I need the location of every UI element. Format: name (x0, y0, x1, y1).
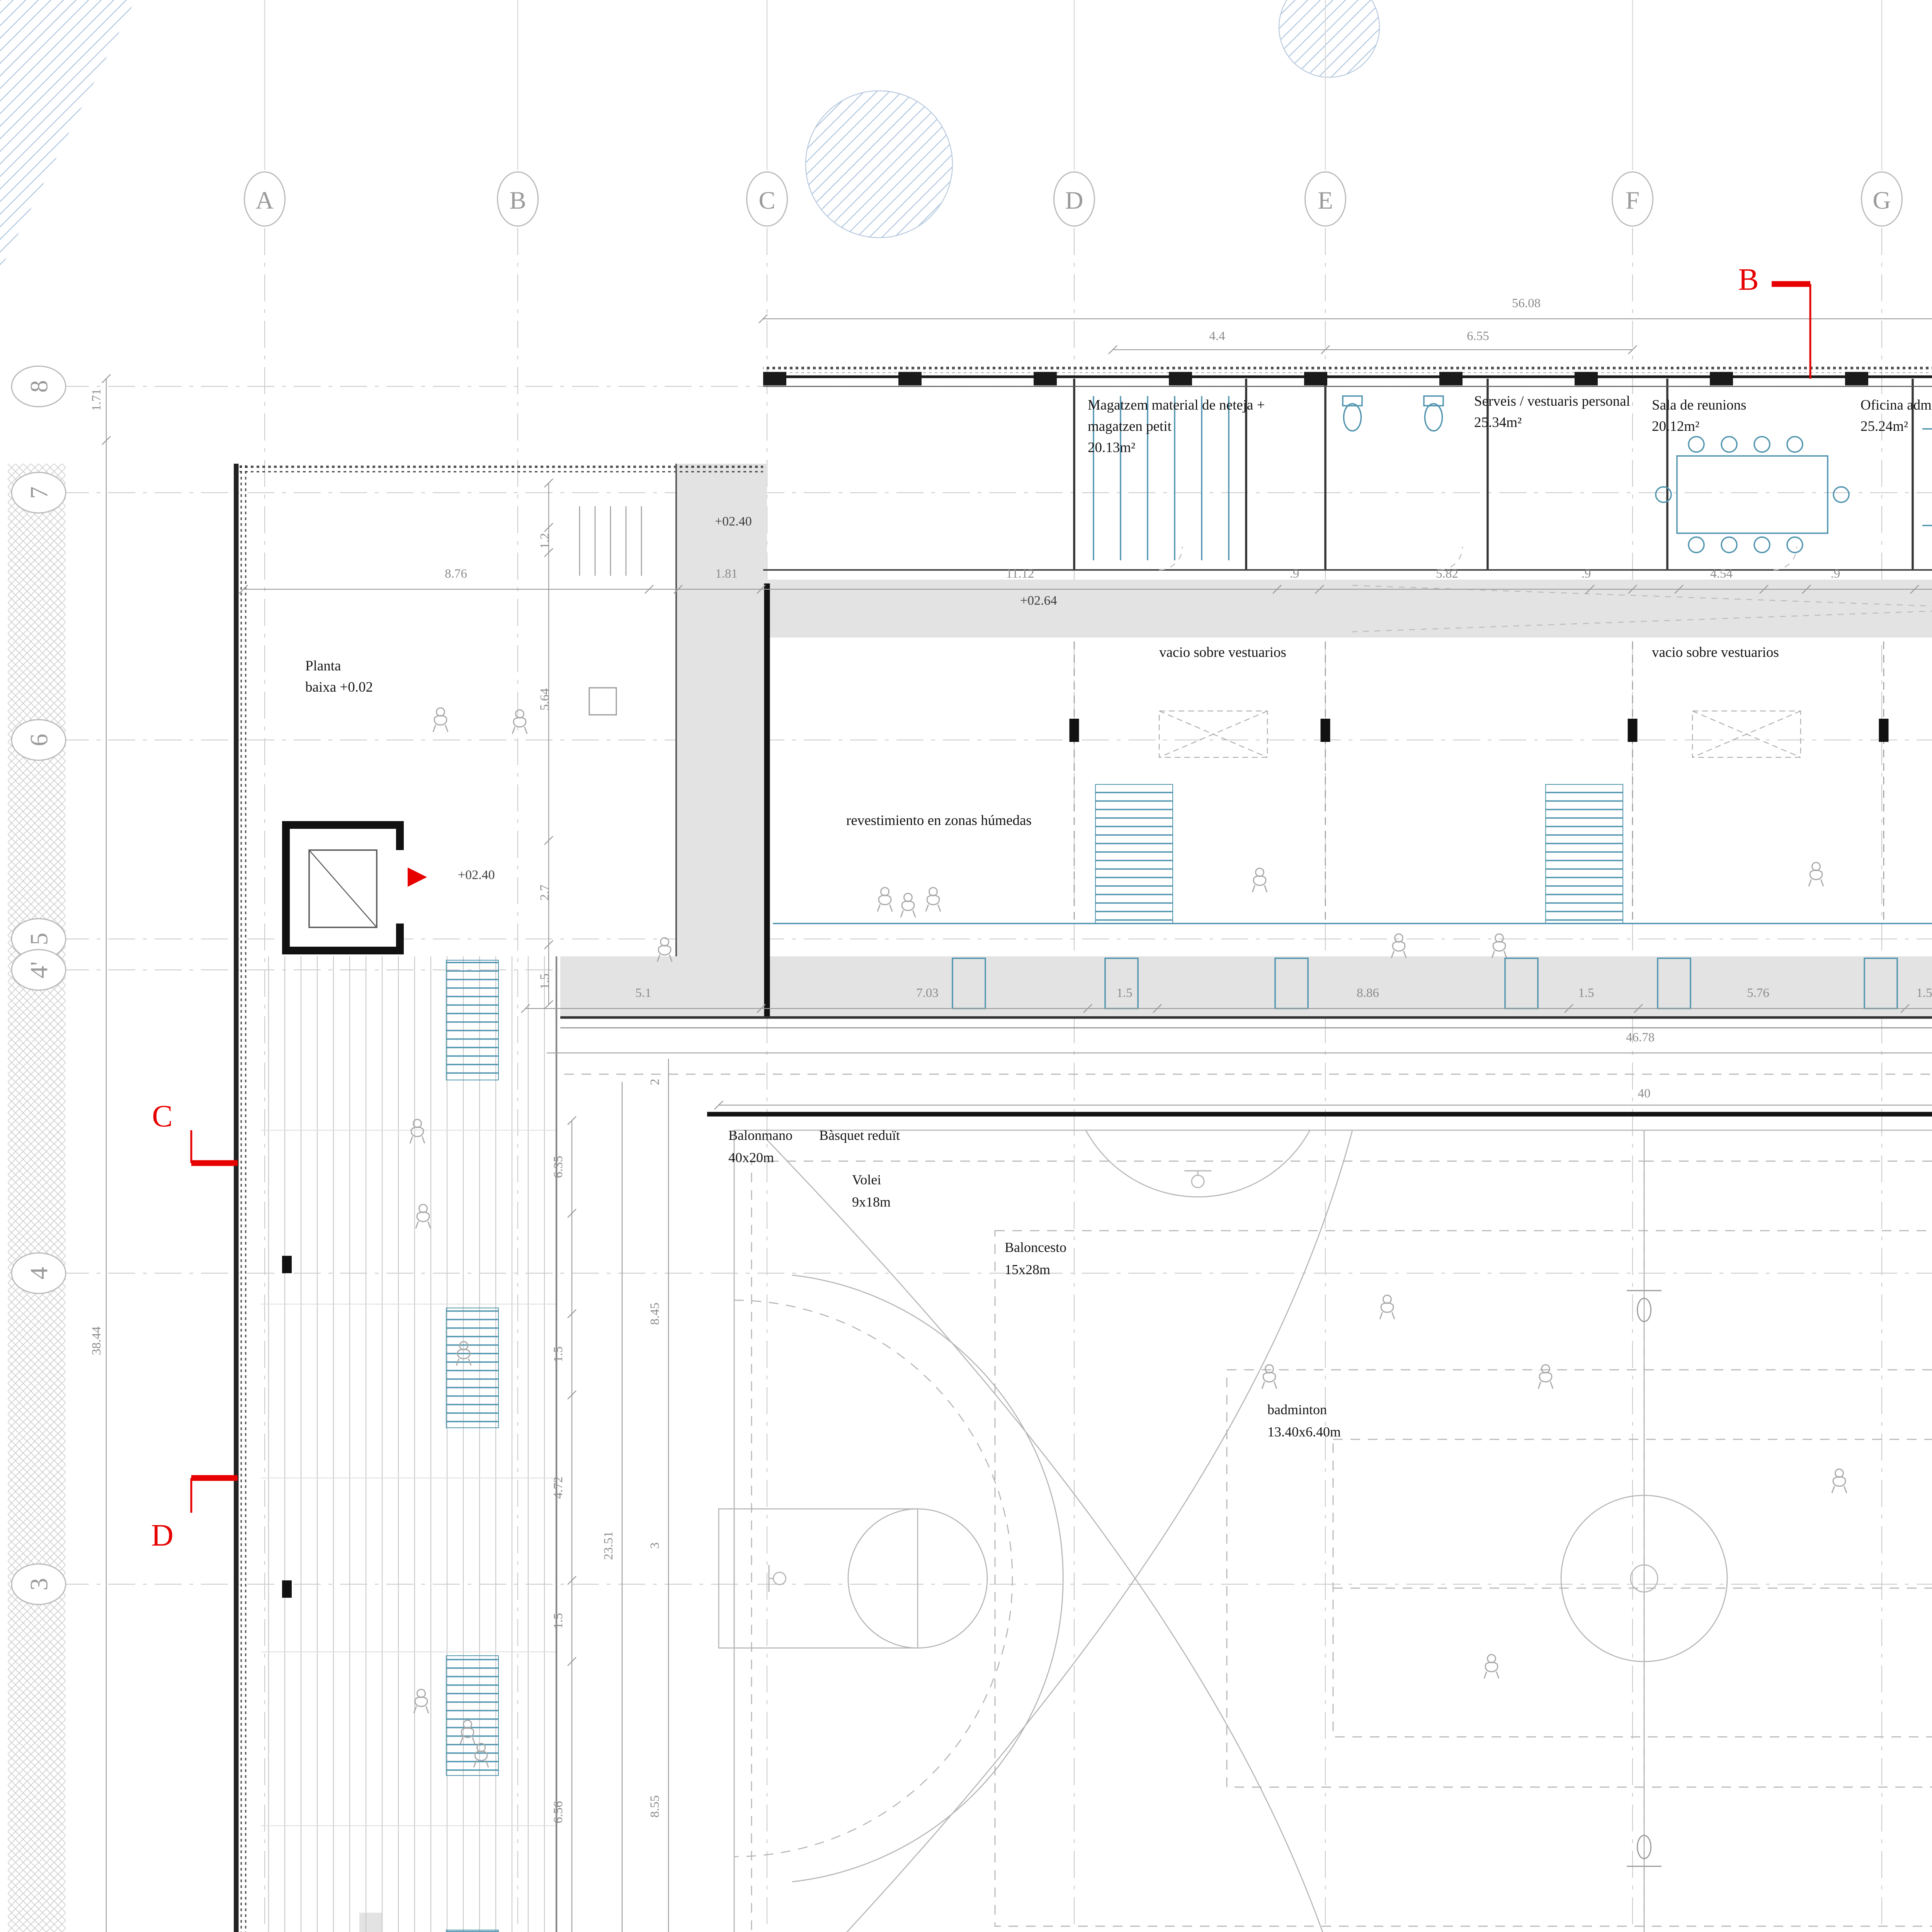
dimension-label: 56.08 (1512, 296, 1541, 310)
dimension-label: 1.81 (715, 567, 738, 581)
dimension-label: 1.5 (551, 1346, 565, 1362)
person-figure (433, 708, 448, 732)
room-label: baixa +0.02 (305, 679, 373, 695)
dimension-label: 8.76 (445, 567, 467, 581)
dimension-label: .9 (1582, 567, 1591, 581)
court-label: Baloncesto (1005, 1240, 1066, 1255)
three-point-arc (792, 1275, 1063, 1882)
dimension-label: 40 (1638, 1087, 1651, 1100)
section-label: B (1738, 263, 1759, 297)
room-label: Magatzem material de neteja + (1088, 397, 1265, 413)
person-figure (1380, 1295, 1395, 1319)
corridor-zone (763, 580, 1932, 638)
person-figure (416, 1204, 430, 1228)
person-figure (901, 893, 915, 917)
elevator (286, 825, 427, 951)
dimension-label: 5.1 (635, 986, 651, 1000)
dimension-label: 1.5 (1916, 986, 1932, 1000)
grid-column-label: F (1626, 187, 1639, 214)
person-figure (512, 710, 527, 734)
dimension-label: 1.5 (538, 973, 552, 989)
person-figure (1538, 1365, 1553, 1389)
room-label: 20.13m² (1088, 440, 1135, 456)
room-label: 25.34m² (1474, 415, 1522, 430)
goal (719, 1509, 734, 1648)
dimension-label: 1.71 (90, 389, 104, 411)
dimension-label: 1.5 (1578, 986, 1594, 1000)
dimension-label: .9 (1290, 567, 1299, 581)
site-hatch-band (8, 464, 66, 1932)
dimension-label: 8.55 (648, 1795, 662, 1818)
section-marker-d-left: D (151, 1478, 238, 1553)
dimension-label: 4.72 (551, 1476, 565, 1499)
corridor-zone (359, 1913, 383, 1932)
stair (446, 960, 498, 1080)
room-label: Oficina administració (1861, 397, 1932, 413)
stair (446, 1656, 498, 1776)
dimension-label: 5.82 (1436, 567, 1458, 581)
grid-row-label: 7 (26, 486, 53, 499)
court-edge (707, 1112, 1932, 1117)
room-label: revestimiento en zonas húmedas (846, 813, 1032, 828)
dimension-label: 8.86 (1357, 986, 1379, 1000)
room-label: magatzen petit (1088, 418, 1172, 434)
level-label: +02.40 (458, 868, 495, 882)
dimension-label: 6.55 (1467, 329, 1489, 343)
dimension-label: 38.44 (90, 1327, 104, 1355)
grid-row-label: 5 (26, 933, 53, 946)
grid-column-label: E (1318, 187, 1333, 214)
court-label: badminton (1267, 1402, 1327, 1417)
stair (446, 1930, 498, 1932)
dimension-label: 6.56 (551, 1801, 565, 1823)
furniture (589, 688, 616, 715)
grid-row-label: 4' (26, 961, 53, 978)
grid-column-label: G (1873, 187, 1891, 214)
court-label: Volei (852, 1172, 881, 1187)
dimension-label: 1.2 (538, 533, 552, 549)
grid-row-label: 8 (26, 380, 53, 393)
dimension-label: 8.45 (648, 1303, 662, 1325)
office-desks (1922, 429, 1932, 535)
dimension-label: 23.51 (602, 1531, 616, 1560)
corridor-zone (676, 464, 767, 1018)
person-figure (1832, 1469, 1847, 1493)
tree-icon (1279, 0, 1379, 77)
person-figure (414, 1689, 429, 1713)
dimension-label: 46.78 (1626, 1031, 1655, 1044)
dimension-label: 6.35 (551, 1156, 565, 1178)
room-label: vacio sobre vestuarios (1159, 645, 1286, 660)
dimension-label: 4.4 (1209, 329, 1225, 343)
grid-column-label: A (256, 187, 274, 214)
reduced-court (1644, 1161, 1932, 1932)
stair (1546, 784, 1623, 923)
room-label: 20.12m² (1652, 418, 1699, 434)
court-label: 13.40x6.40m (1267, 1424, 1341, 1440)
dimension-label: 2.7 (538, 884, 552, 900)
dimension-label: .9 (1831, 567, 1840, 581)
room-label: 25.24m² (1861, 418, 1908, 434)
room-label: vacio sobre vestuarios (1652, 645, 1779, 660)
room-label: Planta (305, 658, 341, 674)
dimension-label: 5.76 (1747, 986, 1769, 1000)
section-markers: B A B A C D C D (151, 263, 1932, 1932)
void-cross-boxes (1159, 711, 1932, 757)
office-band (763, 379, 1932, 570)
grid-column-label: C (759, 187, 775, 214)
person-figure (1809, 862, 1823, 886)
stair (446, 1308, 498, 1428)
person-figure (1252, 868, 1267, 892)
stair (1095, 784, 1173, 923)
goal-area-arc (734, 1300, 1012, 1857)
level-label: +02.40 (715, 514, 752, 529)
court-label: Bàsquet reduït (819, 1128, 900, 1143)
site-hatch-corner (0, 0, 135, 270)
dimension-label: 11.12 (1006, 567, 1034, 581)
grid-column-label: D (1065, 187, 1083, 214)
person-figure (1391, 934, 1406, 958)
dimension-lines (106, 319, 1932, 1932)
section-label: D (151, 1519, 173, 1553)
tree-icon (806, 91, 952, 238)
grandstand (261, 956, 560, 1932)
dimension-label: 4.54 (1710, 567, 1733, 581)
level-label: +02.64 (1020, 594, 1057, 608)
dimension-label: 2 (648, 1079, 662, 1085)
court-label: 9x18m (852, 1194, 891, 1210)
section-label: C (152, 1099, 172, 1133)
person-figure (410, 1119, 425, 1143)
grid-row-label: 4 (26, 1267, 53, 1280)
door-swings (1159, 547, 1932, 570)
person-figure (926, 888, 940, 912)
grid-row-label: 6 (26, 734, 53, 747)
reduced-court (752, 1161, 1644, 1932)
floor-plan: ABCDEFGHII'JJ'87654'4321 (0, 0, 1932, 1932)
person-figure (1492, 934, 1507, 958)
court-label: 40x20m (728, 1150, 774, 1165)
section-arrow (408, 867, 427, 887)
court-label: Balonmano (728, 1128, 793, 1143)
person-figure (878, 888, 892, 912)
dimension-label: 7.03 (916, 986, 939, 1000)
sports-hall (564, 1074, 1932, 1932)
grid-column-label: B (509, 187, 526, 214)
dimension-label: 1.5 (1116, 986, 1132, 1000)
room-label: Serveis / vestuaris personal (1474, 393, 1630, 409)
grid-row-label: 3 (26, 1578, 53, 1591)
person-figure (1484, 1655, 1499, 1679)
section-marker-c-left: C (152, 1099, 238, 1163)
meeting-table (1656, 437, 1849, 553)
entry-stair (580, 506, 641, 576)
person-figure (1262, 1365, 1277, 1389)
dimension-label: 3 (648, 1543, 662, 1549)
room-label: Sala de reunions (1652, 397, 1747, 413)
wc-fixtures (1343, 396, 1443, 431)
dimension-label: 5.64 (538, 688, 552, 711)
dimension-label: 1.5 (551, 1613, 565, 1629)
section-marker-b-top: B (1738, 263, 1810, 379)
court-label: 15x28m (1005, 1262, 1050, 1277)
